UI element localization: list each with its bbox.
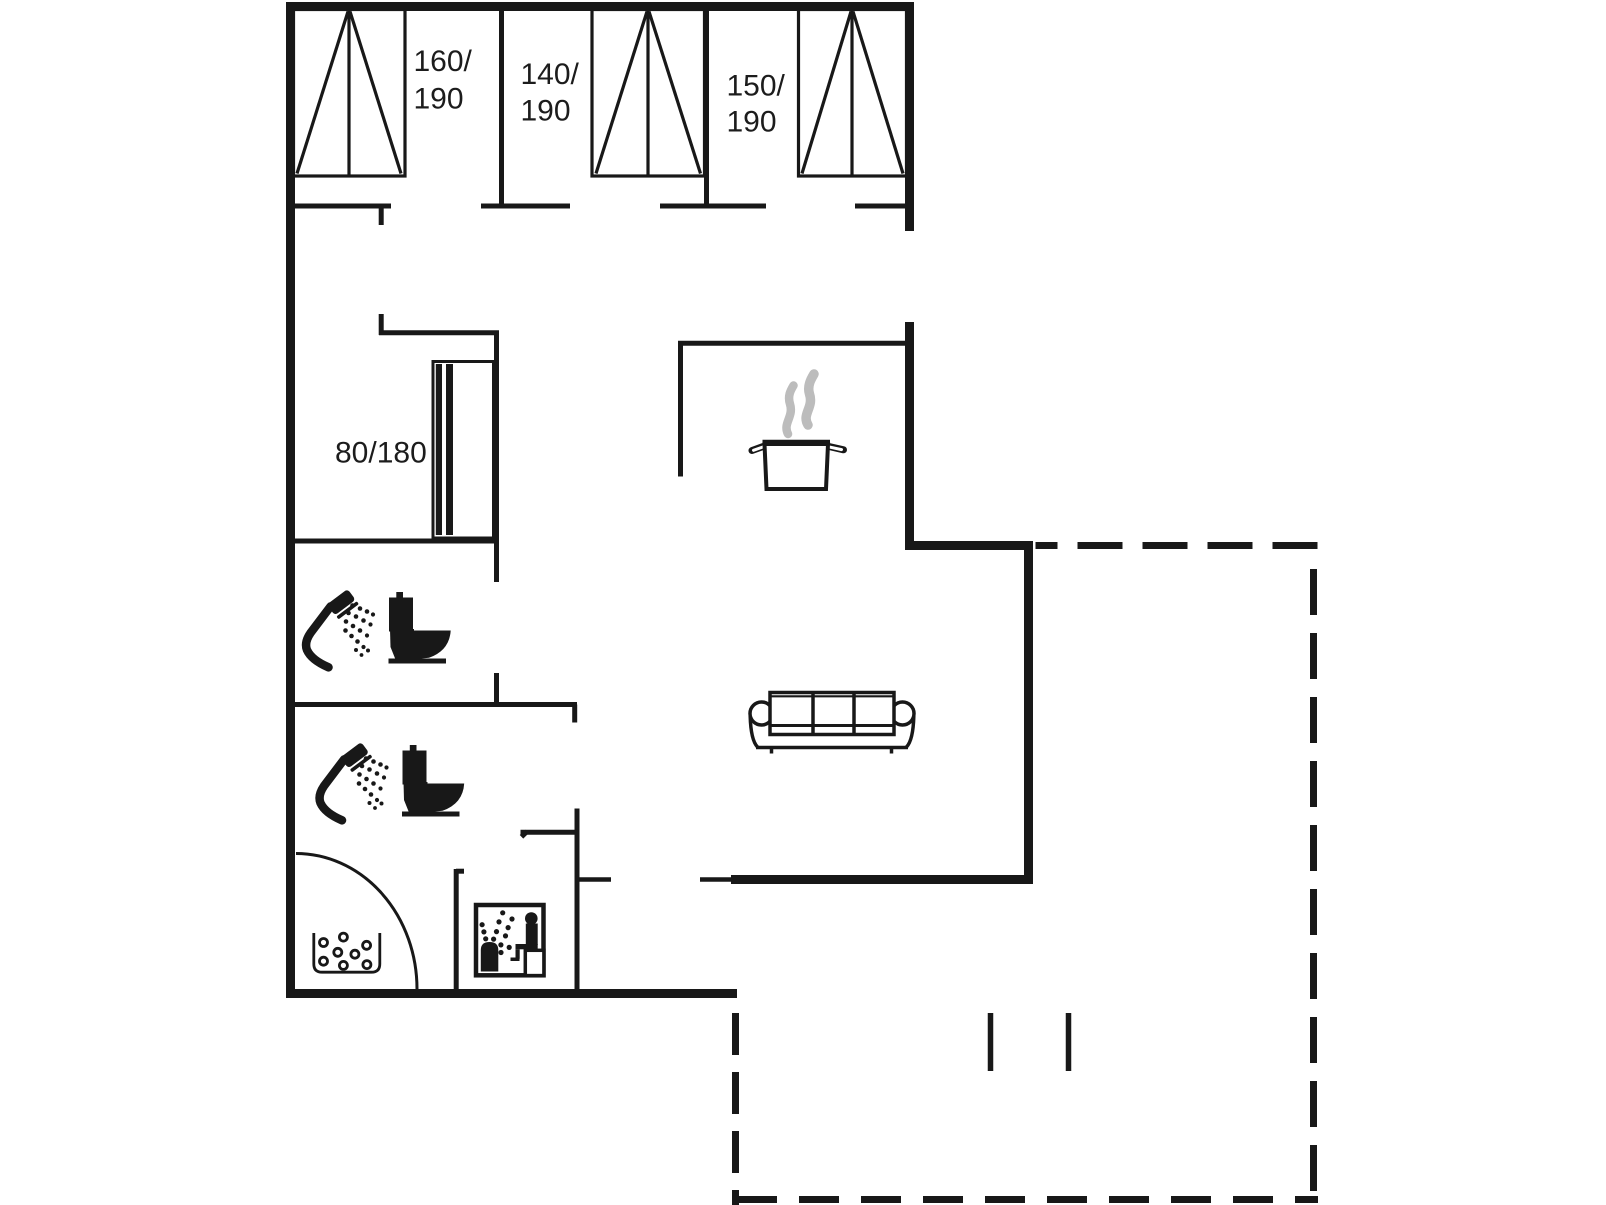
svg-text:160/: 160/ (414, 45, 473, 78)
svg-text:140/: 140/ (521, 58, 580, 91)
svg-text:150/: 150/ (727, 70, 786, 103)
svg-text:190: 190 (727, 106, 777, 139)
svg-text:190: 190 (414, 83, 464, 116)
svg-text:190: 190 (521, 95, 571, 128)
svg-text:80/180: 80/180 (335, 437, 427, 470)
